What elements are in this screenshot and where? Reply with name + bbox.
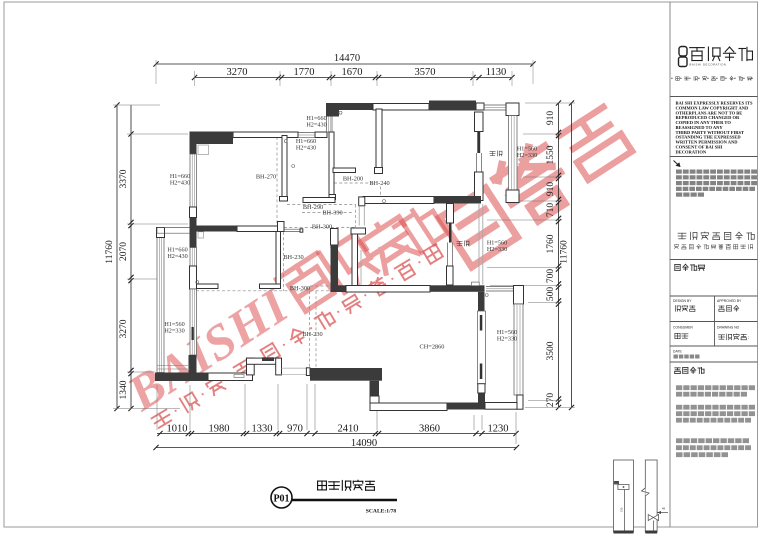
svg-text:H2=330: H2=330 bbox=[497, 335, 517, 342]
svg-text:CONSUMER: CONSUMER bbox=[673, 326, 693, 330]
svg-text:H2=330: H2=330 bbox=[487, 246, 507, 253]
svg-text:H2=430: H2=430 bbox=[167, 253, 187, 260]
svg-text:H2=330: H2=330 bbox=[164, 327, 184, 334]
svg-text:3270: 3270 bbox=[119, 319, 129, 338]
svg-text::: : bbox=[703, 370, 704, 375]
svg-text:1980: 1980 bbox=[209, 424, 230, 435]
svg-text:1550: 1550 bbox=[546, 145, 556, 164]
svg-text:DESIGN BY: DESIGN BY bbox=[673, 299, 692, 303]
svg-text:2070: 2070 bbox=[119, 242, 129, 261]
svg-text:1330: 1330 bbox=[252, 424, 273, 435]
svg-text:BH-200: BH-200 bbox=[343, 176, 363, 183]
svg-text:700: 700 bbox=[546, 269, 556, 284]
svg-text:BH-230: BH-230 bbox=[302, 331, 322, 338]
svg-text:1010: 1010 bbox=[167, 424, 188, 435]
svg-text:3860: 3860 bbox=[419, 424, 440, 435]
svg-text:1130: 1130 bbox=[486, 67, 507, 78]
svg-text:150: 150 bbox=[620, 507, 624, 512]
svg-text:1340: 1340 bbox=[119, 380, 129, 399]
svg-text:BH-290: BH-290 bbox=[303, 204, 323, 211]
svg-text:BH-270: BH-270 bbox=[256, 174, 276, 181]
svg-text:1760: 1760 bbox=[546, 234, 556, 253]
svg-text:910: 910 bbox=[546, 111, 556, 126]
svg-text:3370: 3370 bbox=[119, 169, 129, 188]
svg-text:H2=430: H2=430 bbox=[306, 121, 326, 128]
svg-text:APPROVED BY: APPROVED BY bbox=[717, 299, 742, 303]
svg-text:BAISHI DECORATION: BAISHI DECORATION bbox=[690, 63, 727, 67]
svg-text:3500: 3500 bbox=[546, 341, 556, 360]
svg-text:P01: P01 bbox=[273, 494, 289, 505]
svg-text:1670: 1670 bbox=[342, 67, 363, 78]
svg-text:48: 48 bbox=[662, 507, 666, 511]
svg-text:BH-300: BH-300 bbox=[290, 285, 310, 292]
svg-text:910: 910 bbox=[546, 182, 556, 197]
svg-text:2410: 2410 bbox=[338, 424, 359, 435]
svg-text:270: 270 bbox=[546, 393, 556, 408]
svg-text:1230: 1230 bbox=[488, 424, 509, 435]
svg-text:SCALE:1/78: SCALE:1/78 bbox=[366, 509, 397, 515]
svg-text:3570: 3570 bbox=[415, 67, 436, 78]
svg-text:DECORATION: DECORATION bbox=[676, 149, 707, 154]
svg-text:CH=2860: CH=2860 bbox=[420, 344, 445, 351]
svg-text:970: 970 bbox=[287, 424, 303, 435]
svg-text:14090: 14090 bbox=[351, 438, 377, 449]
svg-text:3270: 3270 bbox=[227, 67, 248, 78]
svg-text:14470: 14470 bbox=[334, 53, 360, 64]
svg-text:H2=430: H2=430 bbox=[296, 144, 316, 151]
svg-text:DRAWING NO: DRAWING NO bbox=[717, 326, 740, 330]
svg-text:BH-230: BH-230 bbox=[283, 254, 303, 261]
svg-text::: : bbox=[748, 336, 749, 341]
svg-text:11760: 11760 bbox=[560, 240, 570, 264]
svg-text:28: 28 bbox=[614, 480, 618, 484]
svg-text:11760: 11760 bbox=[105, 240, 115, 264]
svg-text:BH-390: BH-390 bbox=[322, 210, 342, 217]
svg-text:BH-240: BH-240 bbox=[369, 180, 389, 187]
svg-text:DATE: DATE bbox=[673, 350, 683, 354]
svg-text:BH-300: BH-300 bbox=[312, 224, 332, 231]
svg-text:H2=330: H2=330 bbox=[517, 152, 537, 159]
svg-text:500: 500 bbox=[546, 287, 556, 302]
svg-text:H2=430: H2=430 bbox=[170, 179, 190, 186]
svg-text:710: 710 bbox=[546, 203, 556, 218]
svg-text:1770: 1770 bbox=[294, 67, 315, 78]
